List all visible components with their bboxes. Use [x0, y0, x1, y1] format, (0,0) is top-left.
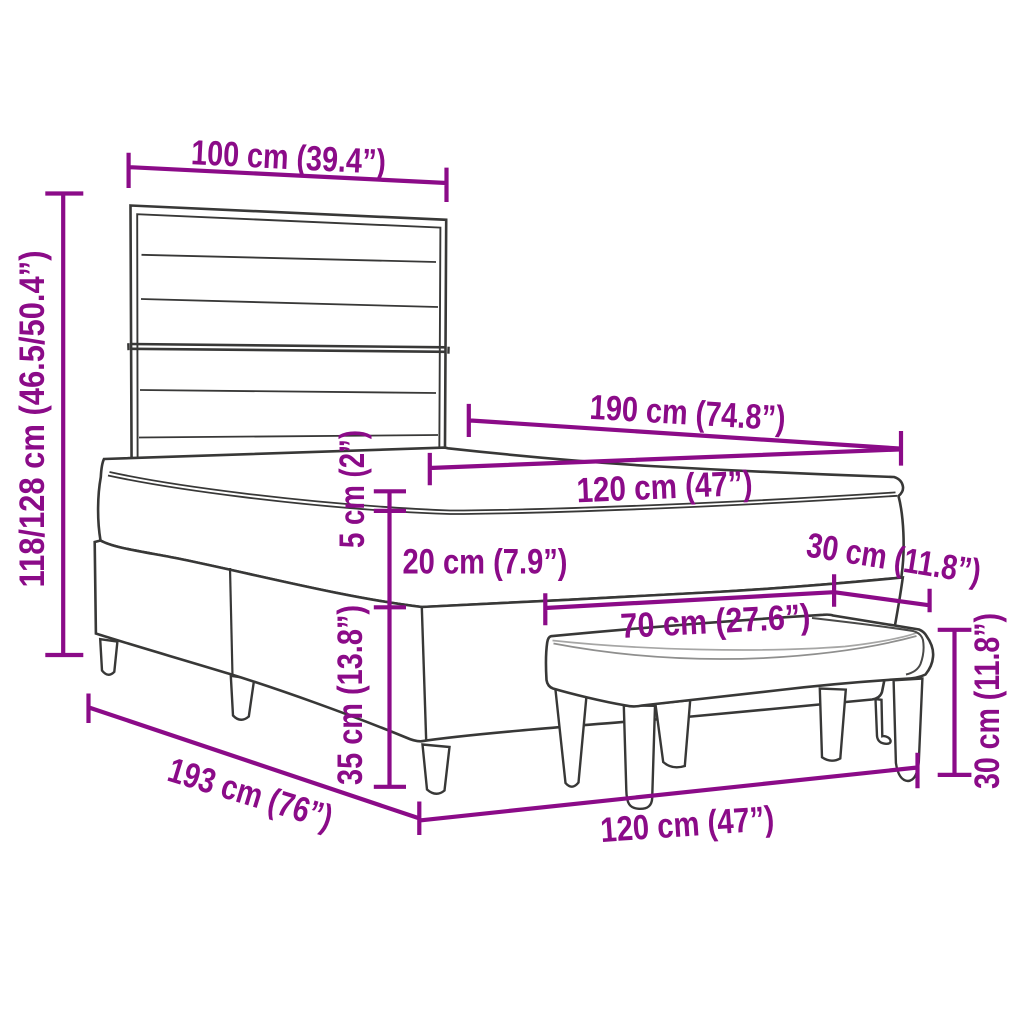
svg-text:5 cm (2”): 5 cm (2”) [333, 430, 372, 548]
svg-text:30 cm (11.8”): 30 cm (11.8”) [968, 613, 1007, 789]
svg-text:118/128 cm (46.5/50.4”): 118/128 cm (46.5/50.4”) [13, 251, 52, 588]
svg-text:35 cm (13.8”): 35 cm (13.8”) [331, 605, 370, 785]
svg-text:120 cm (47”): 120 cm (47”) [576, 464, 754, 511]
svg-text:20 cm (7.9”): 20 cm (7.9”) [403, 543, 568, 582]
